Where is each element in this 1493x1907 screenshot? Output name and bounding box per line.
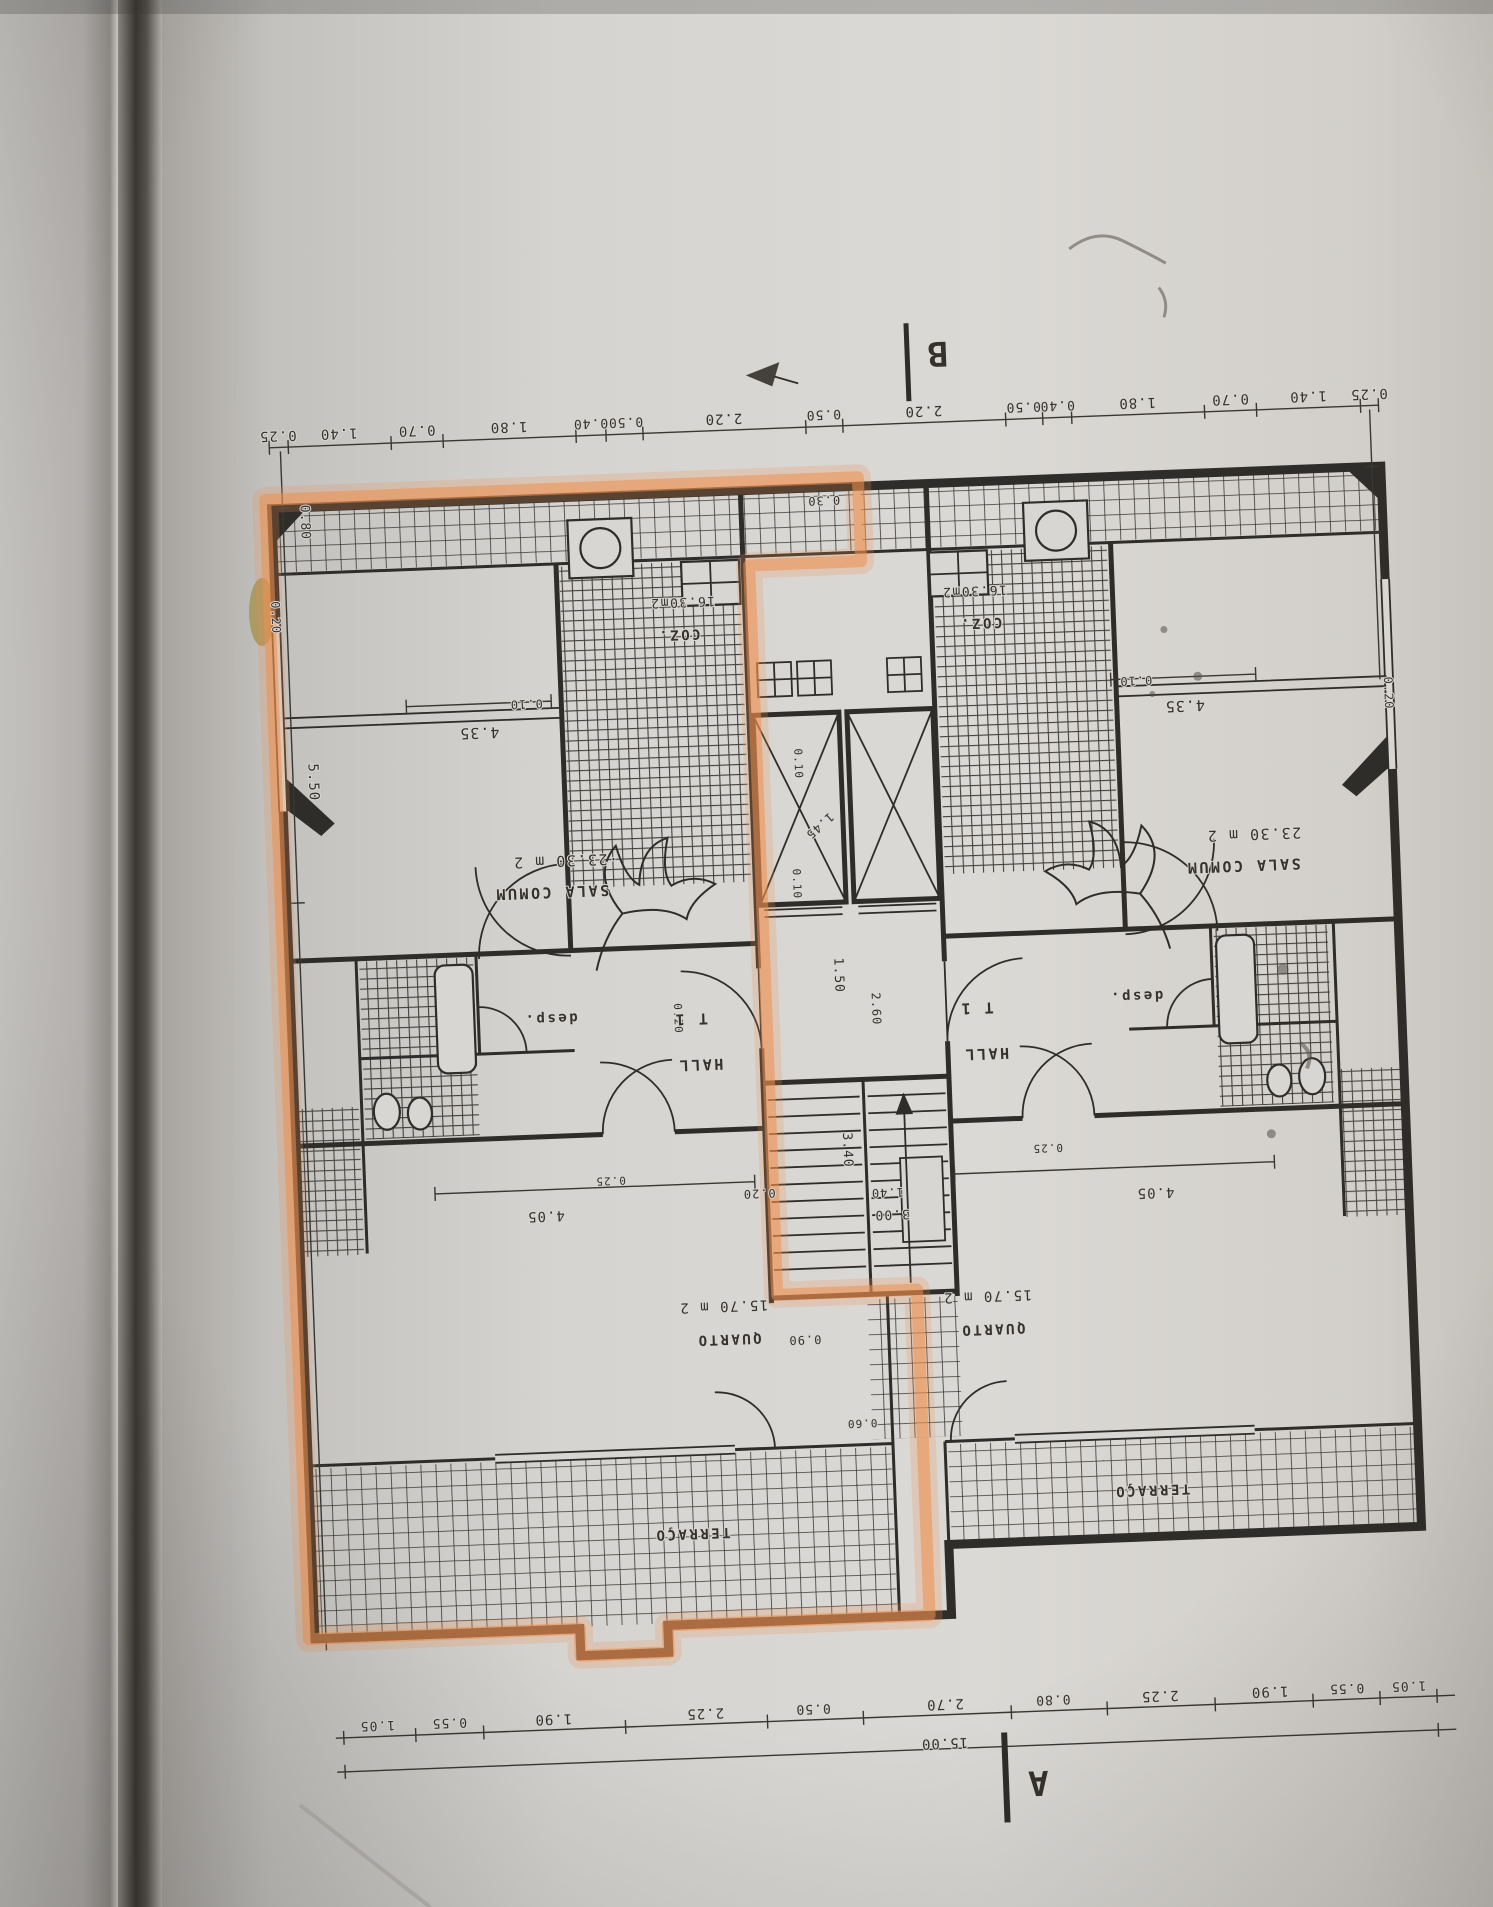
- vignette: [0, 0, 1493, 1907]
- top-shadow: [0, 0, 1493, 14]
- photo-of-floor-plan-page: B A 0.251.400.701.800.400.502.200.502.20…: [0, 0, 1493, 1907]
